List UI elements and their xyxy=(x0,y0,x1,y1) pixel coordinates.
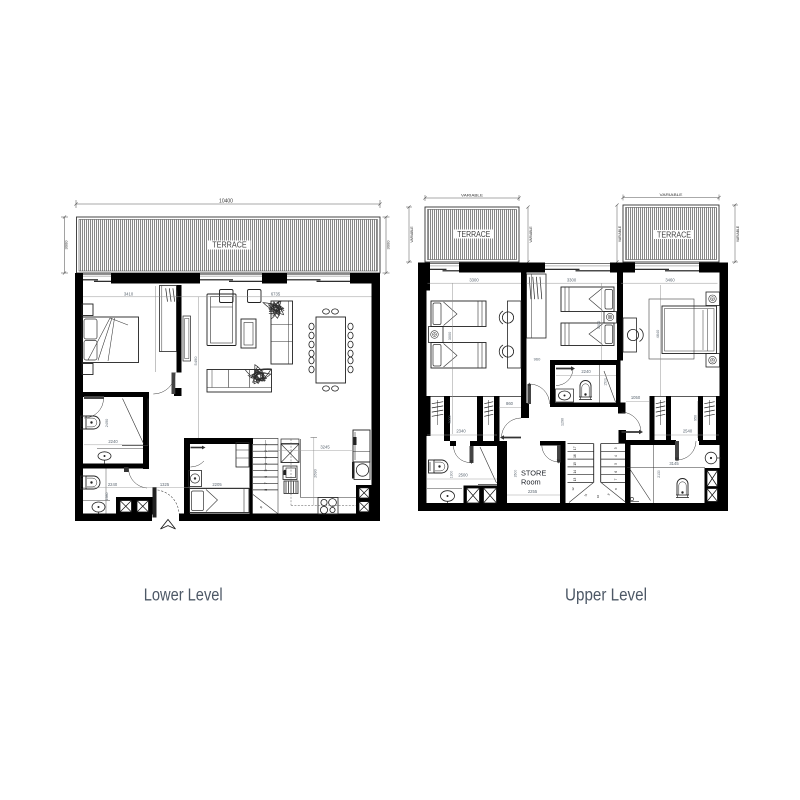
svg-text:13: 13 xyxy=(573,478,577,482)
svg-text:3460: 3460 xyxy=(665,278,675,283)
svg-text:VARIABLE: VARIABLE xyxy=(410,226,414,243)
svg-text:VARIABLE: VARIABLE xyxy=(461,193,483,198)
svg-text:1325: 1325 xyxy=(160,482,170,487)
svg-text:2500: 2500 xyxy=(458,473,468,478)
svg-text:2: 2 xyxy=(264,450,268,452)
svg-text:1500: 1500 xyxy=(604,378,608,386)
svg-text:3300: 3300 xyxy=(567,278,577,283)
svg-text:TERRACE: TERRACE xyxy=(212,241,247,250)
svg-text:2340: 2340 xyxy=(456,428,466,433)
svg-text:2240: 2240 xyxy=(581,369,591,374)
svg-text:3000: 3000 xyxy=(448,416,452,424)
svg-text:2130: 2130 xyxy=(657,470,661,478)
svg-text:Room: Room xyxy=(521,478,541,487)
svg-text:3000: 3000 xyxy=(64,240,69,250)
svg-text:TERRACE: TERRACE xyxy=(657,230,691,239)
svg-text:VARIABLE: VARIABLE xyxy=(660,192,683,197)
svg-text:7: 7 xyxy=(614,478,618,480)
svg-text:960: 960 xyxy=(534,357,541,362)
svg-text:3: 3 xyxy=(614,447,618,449)
svg-text:Upper Level: Upper Level xyxy=(565,584,647,604)
svg-text:5: 5 xyxy=(264,469,268,471)
svg-text:15: 15 xyxy=(573,462,577,466)
svg-text:4640: 4640 xyxy=(656,330,660,338)
svg-text:STORE: STORE xyxy=(521,469,546,478)
svg-text:VARIABLE: VARIABLE xyxy=(529,226,533,243)
svg-text:Lower Level: Lower Level xyxy=(144,585,223,605)
svg-text:3000: 3000 xyxy=(448,332,452,340)
svg-text:7: 7 xyxy=(264,482,268,484)
svg-text:4: 4 xyxy=(614,455,618,457)
svg-text:17: 17 xyxy=(573,446,577,450)
svg-text:8: 8 xyxy=(264,489,268,491)
svg-text:3145: 3145 xyxy=(669,461,679,466)
svg-text:VARIABLE: VARIABLE xyxy=(736,225,740,242)
svg-text:1980: 1980 xyxy=(105,493,109,501)
svg-text:3000: 3000 xyxy=(597,321,601,329)
svg-text:2240: 2240 xyxy=(108,439,118,444)
svg-text:14: 14 xyxy=(573,470,577,474)
svg-text:6: 6 xyxy=(264,476,268,478)
svg-text:1290: 1290 xyxy=(561,418,565,426)
svg-text:6: 6 xyxy=(614,471,618,473)
svg-text:2205: 2205 xyxy=(212,482,222,487)
svg-text:2490: 2490 xyxy=(105,419,109,427)
svg-text:16: 16 xyxy=(573,454,577,458)
svg-text:1: 1 xyxy=(264,444,268,446)
svg-text:2540: 2540 xyxy=(683,428,693,433)
svg-text:860: 860 xyxy=(506,401,514,406)
svg-text:2255: 2255 xyxy=(528,489,538,494)
svg-text:TERRACE: TERRACE xyxy=(457,230,490,239)
svg-text:10: 10 xyxy=(596,495,600,499)
svg-text:3245: 3245 xyxy=(320,445,330,450)
svg-text:2600: 2600 xyxy=(514,470,518,478)
svg-text:10400: 10400 xyxy=(219,198,233,204)
svg-text:3: 3 xyxy=(264,456,268,458)
svg-text:1050: 1050 xyxy=(631,395,641,400)
svg-text:2240: 2240 xyxy=(108,482,118,487)
svg-text:950: 950 xyxy=(694,415,698,421)
svg-text:12: 12 xyxy=(571,487,575,491)
svg-text:6735: 6735 xyxy=(271,291,281,296)
svg-text:2690: 2690 xyxy=(314,469,318,477)
svg-text:5490: 5490 xyxy=(193,356,198,366)
svg-text:3410: 3410 xyxy=(124,291,134,296)
svg-text:1300: 1300 xyxy=(450,471,454,479)
svg-text:3300: 3300 xyxy=(469,278,479,283)
svg-text:VARIABLE: VARIABLE xyxy=(618,225,622,242)
svg-text:4: 4 xyxy=(264,463,268,465)
svg-text:3000: 3000 xyxy=(386,240,391,250)
svg-text:5: 5 xyxy=(614,463,618,465)
